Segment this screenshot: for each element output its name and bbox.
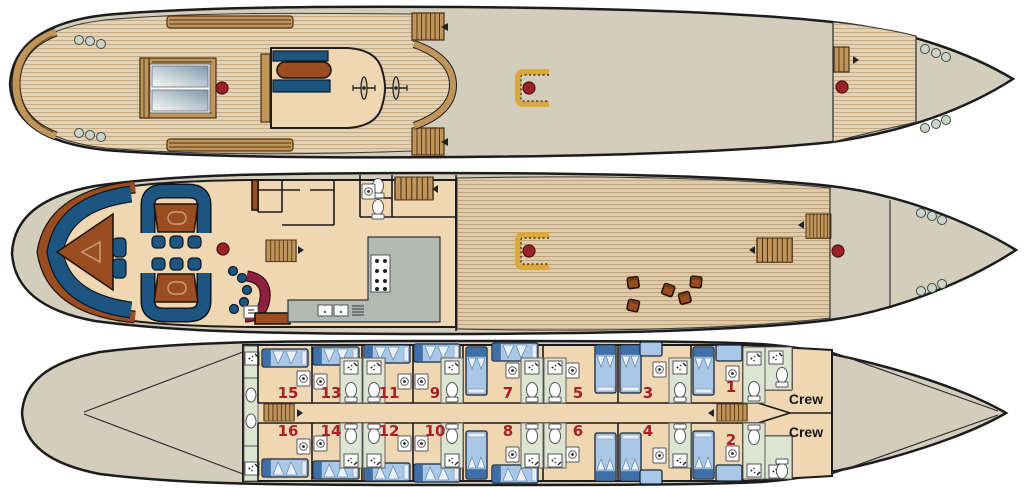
cabin-number: 15 [278, 384, 299, 402]
cabin-number: 9 [430, 384, 440, 402]
toilet-icon [246, 388, 256, 402]
cabin-number: 2 [726, 431, 736, 449]
washbasin-icon [398, 374, 411, 389]
toilet-icon [526, 383, 538, 403]
bed [466, 431, 487, 479]
cabin-number: 14 [321, 422, 342, 440]
shower-icon [445, 361, 459, 374]
bed [693, 431, 714, 479]
bed [640, 342, 662, 356]
stairs-icon [412, 128, 448, 155]
toilet-icon [549, 383, 561, 403]
crew-cabin-label: Crew [789, 424, 823, 440]
toilet-icon [674, 424, 686, 444]
cabin-number: 8 [503, 422, 513, 440]
pillar-icon [216, 82, 228, 94]
wheelhouse-seat [273, 80, 330, 92]
deck-bench-bottom [167, 139, 293, 151]
toilet-icon [748, 382, 760, 402]
cabin-number: 13 [321, 384, 342, 402]
cabin-number: 3 [643, 384, 653, 402]
toilet-icon [446, 383, 458, 403]
toilet-icon [776, 459, 788, 479]
cabin-number: 1 [726, 378, 736, 396]
toilet-icon [246, 414, 256, 428]
washbasin-icon [362, 184, 375, 199]
main-deck [12, 173, 1016, 334]
bed [595, 433, 616, 481]
wheelhouse-berth [277, 62, 331, 78]
washbasin-icon [297, 371, 310, 386]
bed [262, 459, 308, 477]
washbasin-icon [566, 447, 579, 462]
washbasin-icon [506, 447, 519, 462]
shower-icon [245, 462, 259, 475]
toilet-icon [549, 424, 561, 444]
washbasin-icon [398, 436, 411, 451]
pillar-icon [832, 245, 844, 257]
shower-icon [548, 454, 562, 467]
cabin-number: 4 [643, 422, 653, 440]
shower-icon [525, 454, 539, 467]
shower-icon [548, 361, 562, 374]
cabin-number: 12 [379, 422, 400, 440]
lounge-seat [113, 259, 126, 278]
bed [620, 345, 641, 393]
shared-bathrooms [244, 346, 259, 481]
toilet-icon [345, 424, 357, 444]
toilet-icon [372, 200, 384, 220]
ship-deck-plan: 15 13 11 9 7 5 3 1 16 14 12 10 8 6 4 2 C… [0, 0, 1024, 489]
pillar-icon [523, 82, 535, 94]
skylight-icon [140, 58, 216, 118]
pillar-icon [836, 81, 848, 93]
cupboard [252, 180, 258, 210]
sideboard [255, 313, 290, 324]
washbasin-icon [566, 363, 579, 378]
shower-icon [525, 361, 539, 374]
deck-locker [261, 54, 270, 122]
cabin-number: 5 [573, 384, 583, 402]
bed [466, 347, 487, 395]
bed [716, 465, 742, 481]
washbasin-icon [415, 374, 428, 389]
pillar-icon [523, 245, 535, 257]
stairs-icon [395, 177, 438, 200]
shower-icon [367, 454, 381, 467]
toilet-icon [748, 425, 760, 445]
toilet-icon [446, 424, 458, 444]
cabin-number: 6 [573, 422, 583, 440]
shower-icon [769, 351, 783, 364]
shower-icon [445, 454, 459, 467]
shower-icon [344, 454, 358, 467]
bed [640, 470, 662, 484]
shower-icon [245, 352, 259, 365]
deck-bench-top [167, 16, 293, 28]
cabin-number: 11 [379, 384, 400, 402]
sun-deck [10, 7, 1013, 158]
stairs-icon [412, 13, 448, 40]
washbasin-icon [506, 363, 519, 378]
bed [595, 345, 616, 393]
bed [620, 433, 641, 481]
toilet-icon [526, 424, 538, 444]
cabin-deck: 15 13 11 9 7 5 3 1 16 14 12 10 8 6 4 2 C… [22, 341, 1006, 485]
shower-icon [367, 361, 381, 374]
washbasin-icon [297, 439, 310, 454]
toilet-icon [776, 368, 788, 388]
cabin-number: 7 [503, 384, 513, 402]
shower-icon [673, 361, 687, 374]
toilet-icon [345, 383, 357, 403]
pillar-icon [217, 243, 229, 255]
shower-icon [747, 352, 761, 365]
lounge-seat [113, 238, 126, 257]
stove-burners-icon [371, 255, 390, 292]
bed [693, 347, 714, 395]
deck-plan-svg: 15 13 11 9 7 5 3 1 16 14 12 10 8 6 4 2 C… [0, 0, 1024, 489]
cabin-number: 16 [278, 422, 299, 440]
wheelhouse [271, 48, 385, 128]
washbasin-icon [653, 362, 666, 377]
shower-icon [344, 361, 358, 374]
shower-icon [673, 454, 687, 467]
shower-icon [747, 464, 761, 477]
washbasin-icon [653, 448, 666, 463]
wheelhouse-seat [273, 51, 328, 61]
crew-cabin-label: Crew [789, 391, 823, 407]
cabin-number: 10 [425, 422, 446, 440]
bed [716, 345, 742, 361]
bed [262, 349, 308, 367]
toilet-icon [674, 383, 686, 403]
